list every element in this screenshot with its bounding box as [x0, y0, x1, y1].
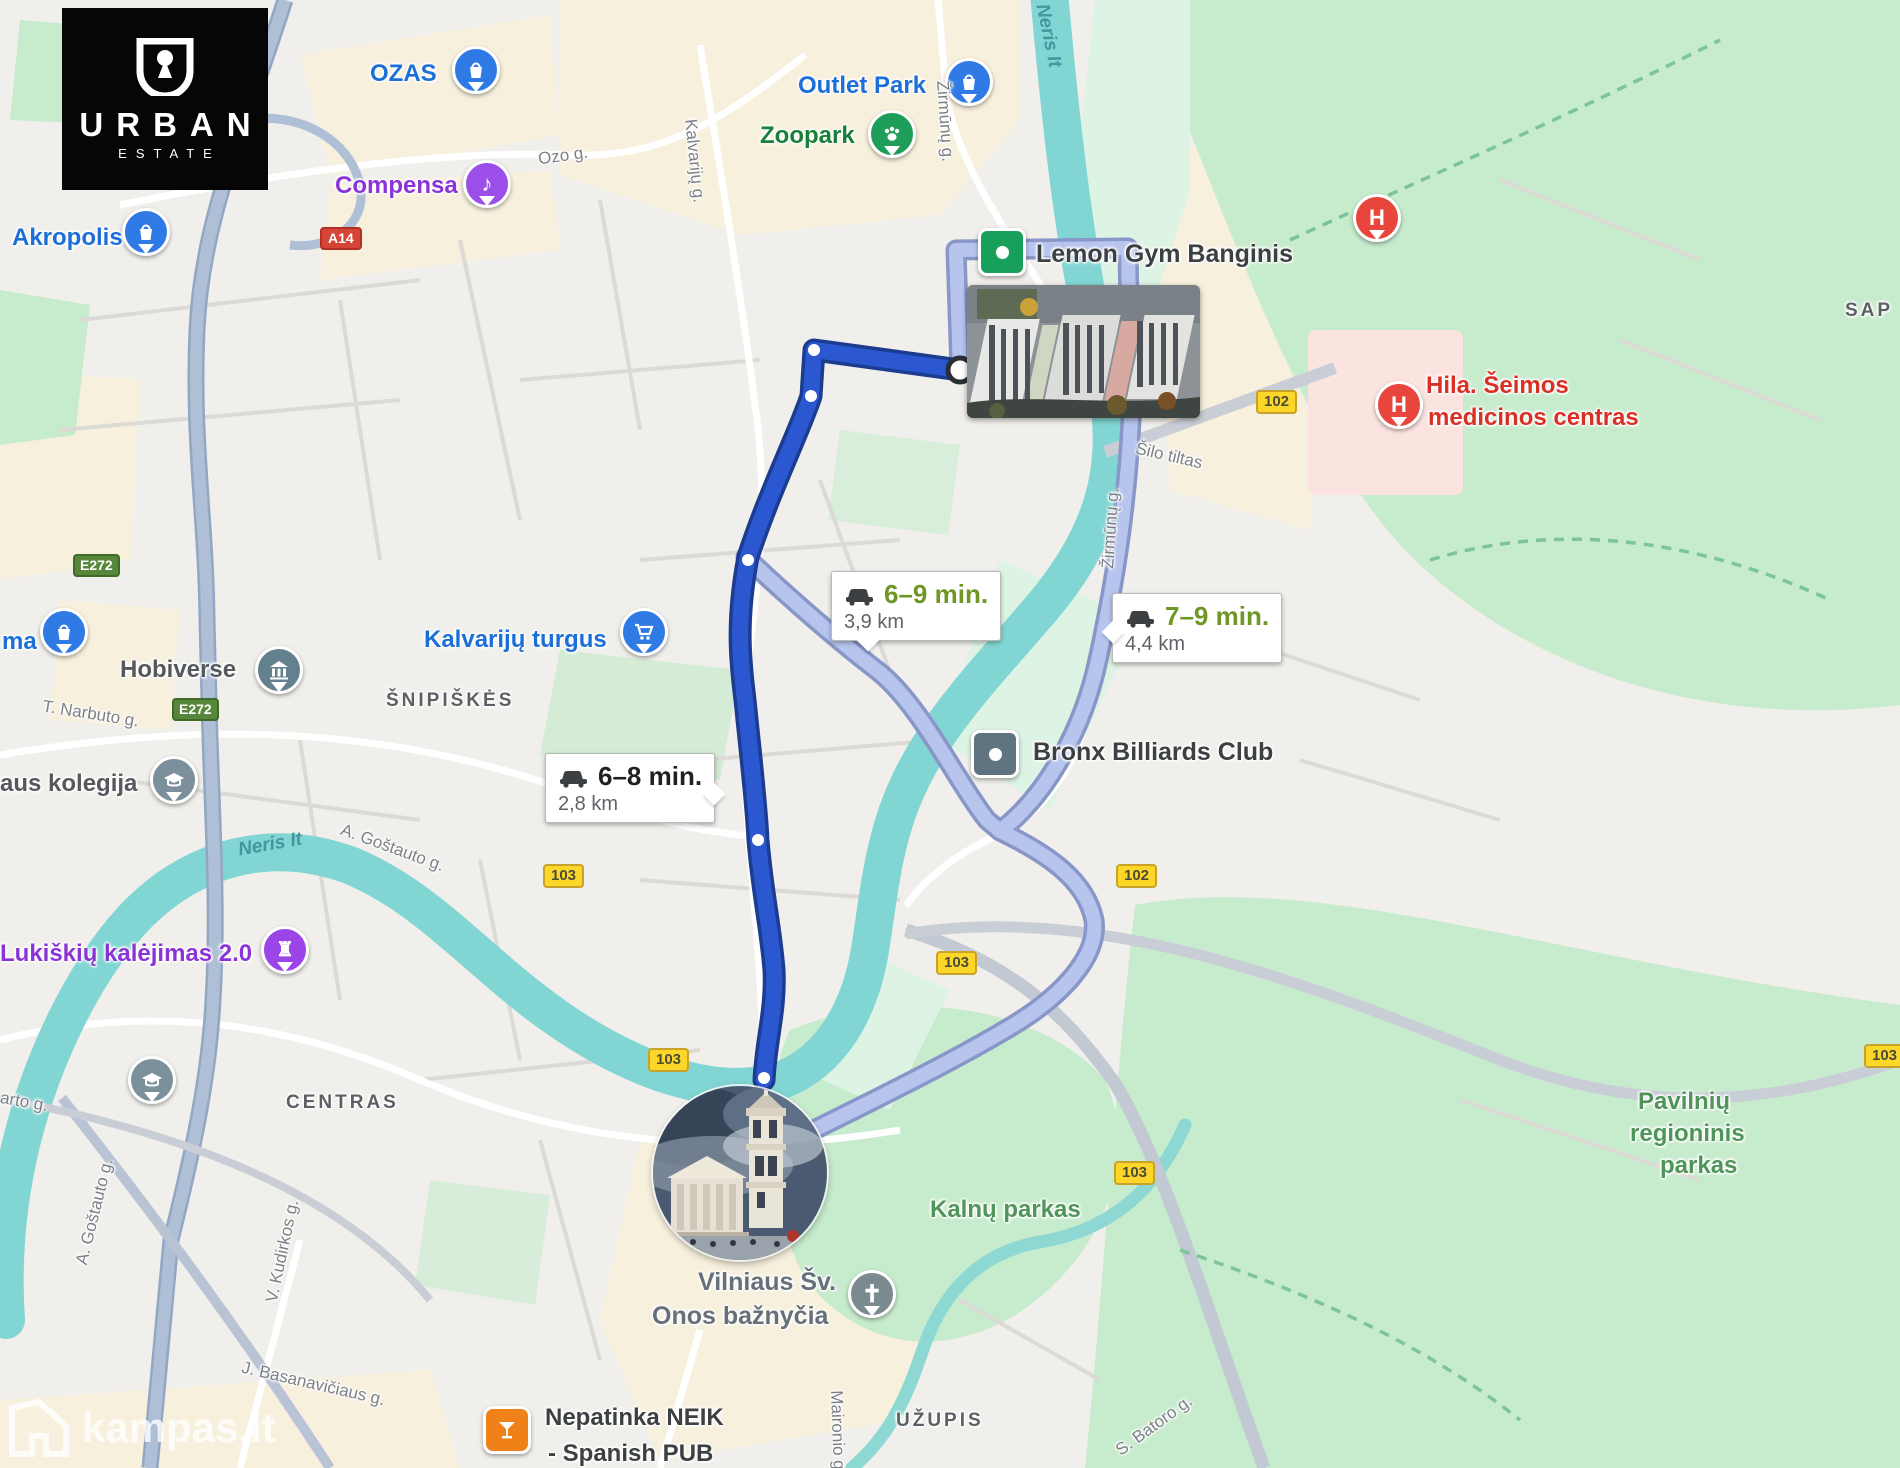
district-label-snipiskes: ŠNIPIŠKĖS	[386, 690, 514, 712]
map-canvas[interactable]: ♪ ♜ H H ✝ 6–8 min. 2,8 km 6–9 min. 3,9 k…	[0, 0, 1900, 1468]
badge-102-1: 102	[1256, 390, 1297, 414]
poi-label-akropolis[interactable]: Akropolis	[12, 224, 123, 252]
badge-103-4: 103	[1114, 1161, 1155, 1185]
badge-102-2: 102	[1116, 864, 1157, 888]
badge-e272-1: E272	[73, 554, 120, 577]
poi-label-hobiverse[interactable]: Hobiverse	[120, 656, 236, 684]
start-property-photo[interactable]	[967, 285, 1200, 418]
kampas-logo-icon	[8, 1398, 70, 1458]
route-bubble-alt1[interactable]: 6–9 min. 3,9 km	[831, 571, 1001, 641]
poi-label-kalvariju-turgus[interactable]: Kalvarijų turgus	[424, 626, 607, 654]
badge-103-1: 103	[543, 864, 584, 888]
poi-label-hila-1[interactable]: Hila. Šeimos	[1426, 372, 1569, 400]
badge-a14: A14	[320, 227, 362, 250]
primary-time: 6–8 min.	[598, 761, 702, 792]
poi-label-zoopark[interactable]: Zoopark	[760, 122, 855, 150]
poi-label-onos-1[interactable]: Vilniaus Šv.	[698, 1268, 836, 1297]
kampas-watermark: kampas.lt	[8, 1398, 276, 1458]
car-icon	[844, 584, 876, 606]
road-label-maironio: Maironio g.	[826, 1390, 849, 1468]
park-label-pavilniu-2: regioninis	[1630, 1120, 1745, 1148]
bronx-marker[interactable]	[971, 730, 1019, 778]
park-label-kalnu[interactable]: Kalnų parkas	[930, 1196, 1081, 1224]
badge-103-2: 103	[648, 1048, 689, 1072]
zoopark-pin paw-icon[interactable]	[868, 110, 916, 158]
poi-label-lemon-gym[interactable]: Lemon Gym Banginis	[1036, 240, 1293, 269]
primary-distance: 2,8 km	[558, 793, 702, 816]
district-label-centras: CENTRAS	[286, 1092, 399, 1114]
destination-photo[interactable]	[653, 1086, 827, 1260]
poi-label-compensa[interactable]: Compensa	[335, 172, 458, 200]
logo-sub-text: ESTATE	[118, 146, 221, 161]
district-label-uzupis: UŽUPIS	[896, 1410, 984, 1432]
poi-label-ozas[interactable]: OZAS	[370, 60, 437, 88]
mall-pin shopping-bag-icon[interactable]	[40, 608, 88, 656]
route-bubble-primary[interactable]: 6–8 min. 2,8 km	[545, 753, 715, 823]
poi-label-ma[interactable]: ma	[2, 628, 37, 656]
park-label-pavilniu-1: Pavilnių	[1638, 1088, 1730, 1116]
poi-label-lukiskiu[interactable]: Lukiškių kalėjimas 2.0	[0, 940, 252, 968]
poi-label-bronx[interactable]: Bronx Billiards Club	[1033, 738, 1273, 767]
alt1-time: 6–9 min.	[884, 579, 988, 610]
poi-label-kolegija[interactable]: aus kolegija	[0, 770, 137, 798]
watermark-text: kampas.lt	[82, 1404, 276, 1452]
badge-e272-2: E272	[172, 698, 219, 721]
alt2-distance: 4,4 km	[1125, 633, 1269, 656]
lukiskiu-pin castle-icon[interactable]: ♜	[261, 926, 309, 974]
poi-label-onos-2[interactable]: Onos bažnyčia	[652, 1302, 828, 1331]
compensa-pin music-note-icon[interactable]: ♪	[463, 160, 511, 208]
district-label-sap: SAP	[1845, 300, 1893, 322]
badge-103-5: 103	[1864, 1044, 1900, 1068]
hobiverse-pin museum-icon[interactable]	[255, 646, 303, 694]
poi-label-hila-2[interactable]: medicinos centras	[1428, 404, 1639, 432]
start-marker[interactable]	[978, 228, 1026, 276]
pub-marker cocktail-icon[interactable]	[483, 1406, 531, 1454]
church-pin cross-icon[interactable]: ✝	[848, 1270, 896, 1318]
kolegija-pin-2 graduation-cap-icon[interactable]	[128, 1056, 176, 1104]
kolegija-pin graduation-cap-icon[interactable]	[150, 756, 198, 804]
route-bubble-alt2[interactable]: 7–9 min. 4,4 km	[1112, 593, 1282, 663]
keyhole-shield-icon	[134, 38, 196, 96]
hospital-pin-1 letter-h-icon[interactable]: H	[1353, 194, 1401, 242]
poi-label-pub-2[interactable]: - Spanish PUB	[548, 1440, 713, 1468]
park-label-pavilniu-3: parkas	[1660, 1152, 1737, 1180]
ozas-pin shopping-bag-icon[interactable]	[452, 46, 500, 94]
akropolis-pin shopping-bag-icon[interactable]	[122, 208, 170, 256]
urban-estate-logo: URBAN ESTATE	[62, 8, 268, 190]
poi-label-pub-1[interactable]: Nepatinka NEIK	[545, 1404, 724, 1432]
poi-label-outlet-park[interactable]: Outlet Park	[798, 72, 926, 100]
car-icon	[1125, 606, 1157, 628]
alt2-time: 7–9 min.	[1165, 601, 1269, 632]
badge-103-3: 103	[936, 951, 977, 975]
car-icon	[558, 766, 590, 788]
logo-brand-text: URBAN	[79, 106, 263, 144]
hospital-pin-2 letter-h-icon[interactable]: H	[1375, 381, 1423, 429]
market-pin shopping-cart-icon[interactable]	[620, 608, 668, 656]
